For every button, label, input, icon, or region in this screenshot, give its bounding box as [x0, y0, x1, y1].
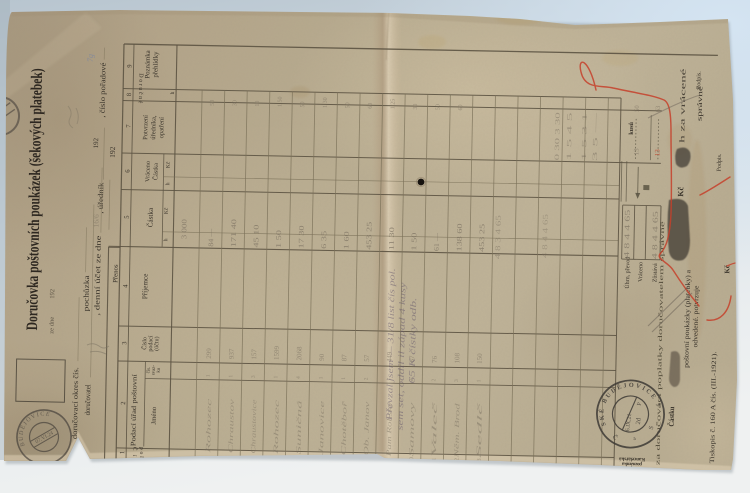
svg-text:150: 150 [476, 353, 484, 364]
svg-text:Jméno: Jméno [151, 406, 158, 424]
svg-text:57: 57 [363, 354, 371, 362]
svg-text:4 8 4 4 65: 4 8 4 4 65 [622, 209, 632, 258]
svg-text:6 35: 6 35 [320, 230, 328, 249]
svg-text:přehlídky: přehlídky [152, 51, 160, 78]
svg-text:453 25: 453 25 [478, 223, 487, 252]
svg-text:84 —: 84 — [207, 228, 215, 247]
svg-text:8: 8 [126, 93, 133, 96]
svg-text:60: 60 [368, 103, 374, 109]
svg-text:61 —: 61 — [433, 232, 441, 251]
svg-text:50: 50 [435, 104, 441, 110]
svg-text:16/6: 16/6 [91, 214, 100, 228]
svg-text:50: 50 [300, 101, 306, 107]
svg-text:poznámka: poznámka [621, 461, 642, 466]
svg-text:1 5 4 5: 1 5 4 5 [566, 113, 574, 161]
svg-text:h: h [163, 238, 169, 241]
svg-text:Samovy: Samovy [408, 402, 416, 456]
svg-text:4: 4 [296, 376, 302, 379]
svg-text:1 50: 1 50 [278, 96, 284, 107]
svg-text:1: 1 [273, 375, 279, 378]
svg-text:Kč: Kč [166, 161, 172, 168]
svg-text:13: 13 [653, 149, 661, 157]
svg-text:1: 1 [318, 376, 324, 379]
svg-text:0 30 3 30: 0 30 3 30 [554, 112, 562, 160]
svg-text:87: 87 [340, 354, 348, 362]
svg-text:1: 1 [206, 374, 212, 377]
svg-text:1: 1 [341, 377, 347, 380]
svg-text:úředníka,: úředníka, [150, 115, 157, 140]
svg-text:kusů: kusů [628, 121, 635, 134]
svg-text:Příjemce: Příjemce [141, 274, 149, 300]
svg-text:1 50: 1 50 [275, 229, 283, 248]
svg-text:Poznámka: Poznámka [144, 50, 152, 78]
svg-text:138 60: 138 60 [455, 223, 464, 252]
svg-text:50: 50 [345, 102, 351, 108]
svg-text:299: 299 [205, 348, 213, 359]
svg-text:opatření: opatření [158, 117, 165, 139]
svg-text:Rohozec: Rohozec [273, 400, 281, 457]
svg-text:Částka: Částka [144, 207, 154, 228]
svg-text:Ob. Janov: Ob. Janov [363, 402, 371, 456]
svg-text:108: 108 [453, 352, 461, 363]
svg-text:171 40: 171 40 [230, 218, 239, 247]
svg-text:h: h [165, 182, 171, 185]
svg-text:192: 192 [49, 289, 56, 299]
svg-text:50: 50 [634, 105, 641, 112]
svg-text:10: 10 [255, 101, 261, 107]
svg-text:Rohozec: Rohozec [205, 398, 213, 455]
svg-text:Kč: Kč [164, 207, 170, 214]
svg-text:h za vrácené: h za vrácené [678, 69, 687, 143]
svg-text:30: 30 [413, 104, 419, 110]
svg-text:Podpis.: Podpis. [717, 153, 723, 171]
svg-text:(účtu): (účtu) [153, 336, 160, 350]
svg-text:453 25: 453 25 [365, 221, 374, 250]
svg-text:Kč: Kč [676, 186, 685, 196]
svg-text:3: 3 [251, 375, 257, 378]
svg-text:1 25: 1 25 [390, 99, 396, 110]
svg-text:1 50: 1 50 [410, 232, 418, 251]
svg-text:2: 2 [364, 377, 370, 380]
svg-text:1 30: 1 30 [323, 97, 329, 108]
svg-text:7g: 7g [86, 54, 95, 62]
svg-text:Chraustov: Chraustov [228, 399, 236, 453]
svg-text:Vráceno: Vráceno [638, 262, 644, 282]
svg-text:13: 13 [632, 148, 640, 156]
svg-text:3 5 —: 3 5 — [592, 112, 600, 162]
svg-text:Částku: Částku [666, 406, 676, 426]
svg-text:1: 1 [228, 375, 234, 378]
svg-text:192: 192 [92, 137, 100, 148]
svg-text:Zůstává: Zůstává [652, 263, 659, 282]
svg-text:pochůzka: pochůzka [81, 274, 91, 311]
svg-text:45 10: 45 10 [252, 224, 260, 248]
svg-text:5: 5 [124, 215, 131, 218]
svg-text:4 8 4 4 65: 4 8 4 4 65 [650, 211, 660, 260]
svg-text:2068: 2068 [295, 346, 303, 361]
svg-text:30: 30 [232, 100, 238, 106]
svg-text:937: 937 [228, 348, 236, 359]
svg-text:2: 2 [431, 378, 437, 381]
svg-text:1 5 3 1: 1 5 3 1 [581, 113, 589, 161]
svg-text:2: 2 [120, 401, 127, 404]
svg-text:Kancelářská: Kancelářská [619, 456, 646, 462]
svg-text:1599: 1599 [273, 345, 281, 360]
svg-text:90: 90 [318, 353, 326, 361]
svg-text:1: 1 [476, 379, 482, 382]
svg-text:17 30: 17 30 [297, 225, 305, 249]
svg-text:1 60: 1 60 [343, 231, 351, 250]
svg-text:3: 3 [454, 379, 460, 382]
svg-text:1: 1 [119, 451, 126, 454]
svg-text:157: 157 [250, 348, 258, 359]
svg-text:9: 9 [127, 64, 134, 67]
svg-text:Suničná: Suničná [295, 399, 303, 455]
svg-text:3: 3 [121, 341, 128, 344]
svg-text:ze dne: ze dne [48, 317, 55, 334]
svg-text:h: h [170, 91, 176, 94]
svg-text:, číslo pořadové: , číslo pořadové [98, 62, 108, 118]
svg-text:doručovací okres čís.: doručovací okres čís. [70, 367, 80, 439]
svg-text:Potvrzení: Potvrzení [142, 115, 149, 140]
svg-text:doručovatel: doručovatel [83, 384, 93, 415]
svg-text:192: 192 [108, 146, 117, 158]
svg-text:Chraustovice: Chraustovice [250, 399, 258, 453]
svg-text:60: 60 [458, 104, 464, 110]
svg-text:odvedené. potvrzuje: odvedené. potvrzuje [691, 285, 700, 347]
svg-text:11 30: 11 30 [388, 227, 396, 251]
svg-text:Valeč: Valeč [431, 399, 439, 457]
svg-text:4 8 4 4 65: 4 8 4 4 65 [540, 214, 550, 259]
svg-text:4 8 3 4 65: 4 8 3 4 65 [493, 215, 503, 260]
svg-text:Přenos: Přenos [112, 264, 119, 283]
svg-text:ku: ku [157, 367, 162, 372]
svg-text:Sedlč: Sedlč [476, 400, 484, 458]
svg-text:76: 76 [431, 355, 439, 363]
svg-text:Podpis.: Podpis. [696, 71, 702, 89]
svg-text:Částka: Částka [151, 163, 159, 180]
svg-text:3 000: 3 000 [180, 219, 188, 240]
svg-text:Něm. Brod: Něm. Brod [453, 402, 461, 459]
svg-text:správně: správně [696, 86, 705, 121]
svg-text:Vráceno: Vráceno [144, 161, 151, 182]
svg-text:, úředník: , úředník [96, 182, 106, 213]
svg-text:65 K čístky odb.: 65 K čístky odb. [407, 298, 419, 384]
svg-text:Podací úřad poštovní: Podací úřad poštovní [130, 374, 138, 446]
svg-text:Chotěboř: Chotěboř [341, 400, 349, 455]
svg-text:, denní účet ze dne: , denní účet ze dne [92, 234, 103, 315]
svg-text:50: 50 [210, 100, 216, 106]
svg-text:Janovice: Janovice [318, 401, 326, 455]
svg-text:Číslo: Číslo [140, 337, 148, 350]
